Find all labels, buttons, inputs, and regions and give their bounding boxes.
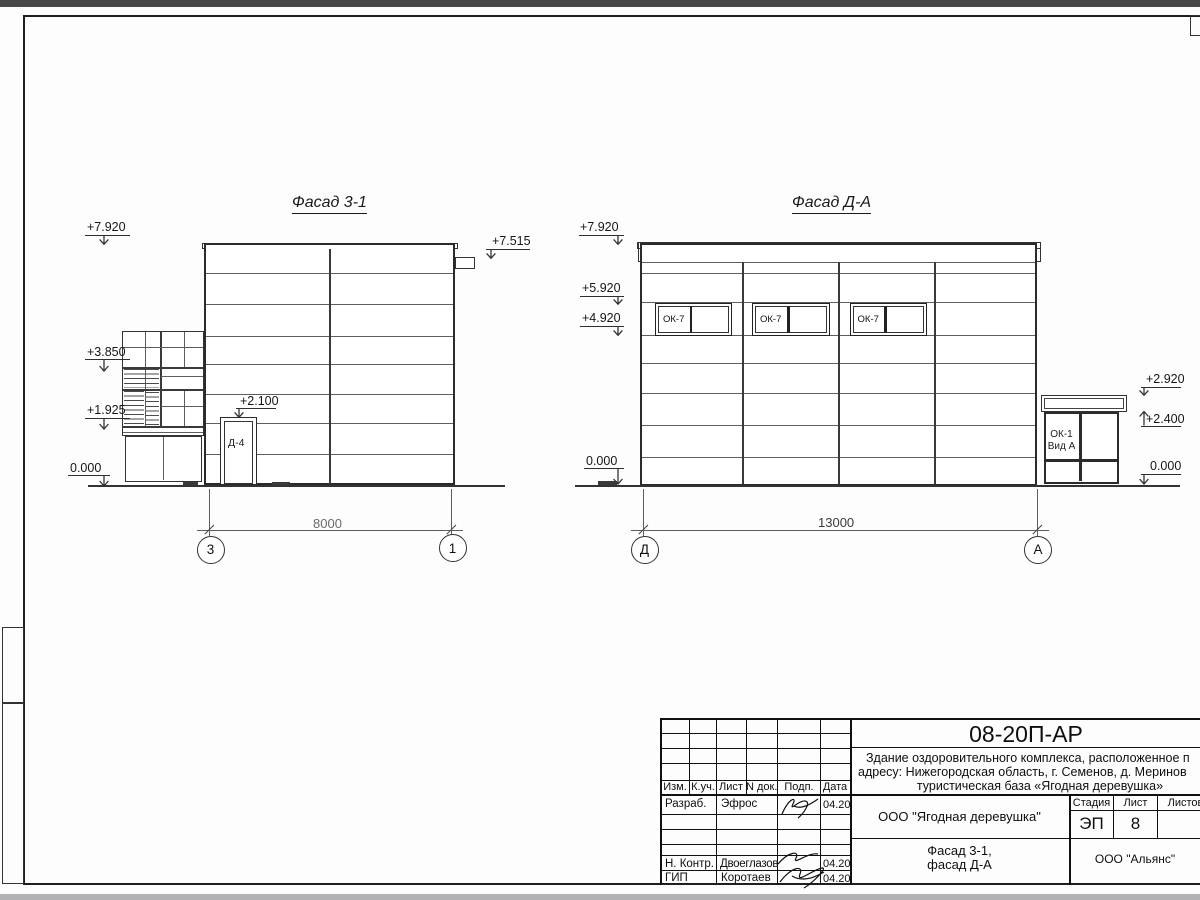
sheet-label: Лист [1114,797,1157,809]
stage-value: ЭП [1070,814,1113,834]
facade-right-joint [838,262,840,484]
elevation-label: +2.400 [1146,412,1185,426]
stair-annex [122,331,204,436]
project-description: туристическая база «Ягодная деревушка» [870,779,1200,793]
facade-right-joint [934,262,936,484]
dimension-value: 8000 [313,516,342,531]
row-name: Двоеглазов [720,858,778,870]
annex-window-label: Вид А [1046,441,1077,452]
row-role: ГИП [665,872,688,884]
elevation-arrow-icon [484,249,498,259]
elevation-label: +1.925 [87,403,126,417]
entrance-canopy [1041,395,1127,413]
window-label: ОК-7 [858,314,879,325]
sheet-value: 8 [1114,814,1157,834]
window-ok7: ОК-7 [850,303,928,336]
elevation-arrow-icon [611,468,625,485]
elevation-arrow-icon [97,359,111,372]
axis-circle: Д [631,536,659,564]
project-description: адресу: Нижегородская область, г. Семено… [858,765,1187,779]
row-role: Разраб. [665,798,706,810]
ground-line-left [88,485,505,488]
elevation-arrow-icon [611,326,625,336]
elevation-label: +3.850 [87,345,126,359]
annex-window-label: ОК-1 [1046,429,1077,440]
col-header: Лист [717,781,745,793]
frame-corner-box [1190,15,1200,36]
elevation-arrow-icon [1137,411,1151,426]
axis-circle: 1 [439,534,467,562]
drawing-sheet: Фасад 3-1 Д-4 +7.920 +3.850 [0,0,1200,900]
dimension-value: 13000 [818,515,854,530]
elevation-label: +7.920 [580,220,619,234]
elevation-arrow-icon [1137,474,1151,485]
elevation-arrow-icon [97,418,111,430]
elevation-arrow-icon [611,296,625,305]
elevation-label: +2.100 [240,394,279,408]
elevation-arrow-icon [97,475,111,487]
col-header: К.уч. [690,781,716,793]
row-role: Н. Контр. [665,858,714,870]
roof-outlet [455,257,476,269]
col-header: N док. [746,781,777,793]
frame-top [23,15,1200,17]
col-header: Изм. [661,781,689,793]
axis-circle: А [1024,536,1052,564]
margin-box-lower [2,703,24,884]
bottom-window-bar [0,894,1200,900]
ground-line-right [575,485,1180,488]
stair-louver [124,391,144,425]
doc-code: 08-20П-АР [850,721,1200,748]
window-ok7: ОК-7 [752,303,830,336]
dimension-line [631,530,1049,531]
stair-louver [146,392,159,425]
col-header: Подп. [778,781,820,793]
elevation-label: 0.000 [70,461,101,475]
elevation-label: +2.920 [1146,372,1185,386]
company-name: ООО "Альянс" [1070,852,1200,866]
annex-storefront [125,436,202,482]
elevation-label: 0.000 [586,454,617,468]
drawing-name: фасад Д-А [852,857,1067,872]
window-label: ОК-7 [663,314,684,325]
stair-louver [124,369,159,388]
elevation-label: +4.920 [582,311,621,325]
axis-circle: 3 [197,536,225,564]
signature [774,848,830,894]
facade-right-title: Фасад Д-А [792,194,871,214]
window-label: ОК-7 [760,314,781,325]
elevation-label: +7.920 [87,220,126,234]
elevation-arrow-icon [97,235,111,245]
col-header: Дата [821,781,849,793]
signature [779,794,821,821]
elevation-label: 0.000 [1150,459,1181,473]
elevation-label: +7.515 [492,234,531,248]
project-description: Здание оздоровительного комплекса, распо… [866,751,1190,765]
facade-right-joint [742,262,744,484]
org-name: ООО "Ягодная деревушка" [852,809,1067,824]
elevation-arrow-icon [1137,387,1151,396]
elevation-arrow-icon [232,408,246,418]
door-leaf [224,421,253,484]
row-date: 04.20 [823,799,851,811]
drawing-name: Фасад 3-1, [852,843,1067,858]
facade-left-title: Фасад 3-1 [292,194,367,214]
row-name: Коротаев [721,872,771,884]
top-window-bar [0,0,1200,7]
margin-box-upper [2,627,24,703]
door-label: Д-4 [228,437,244,449]
frame-bottom [23,883,1200,886]
window-ok7: ОК-7 [655,303,732,336]
sheets-label: Листов [1158,797,1200,809]
facade-left-joint [329,249,331,484]
elevation-label: +5.920 [582,281,621,295]
elevation-arrow-icon [611,235,625,245]
stage-label: Стадия [1070,797,1113,809]
row-name: Эфрос [721,798,757,810]
